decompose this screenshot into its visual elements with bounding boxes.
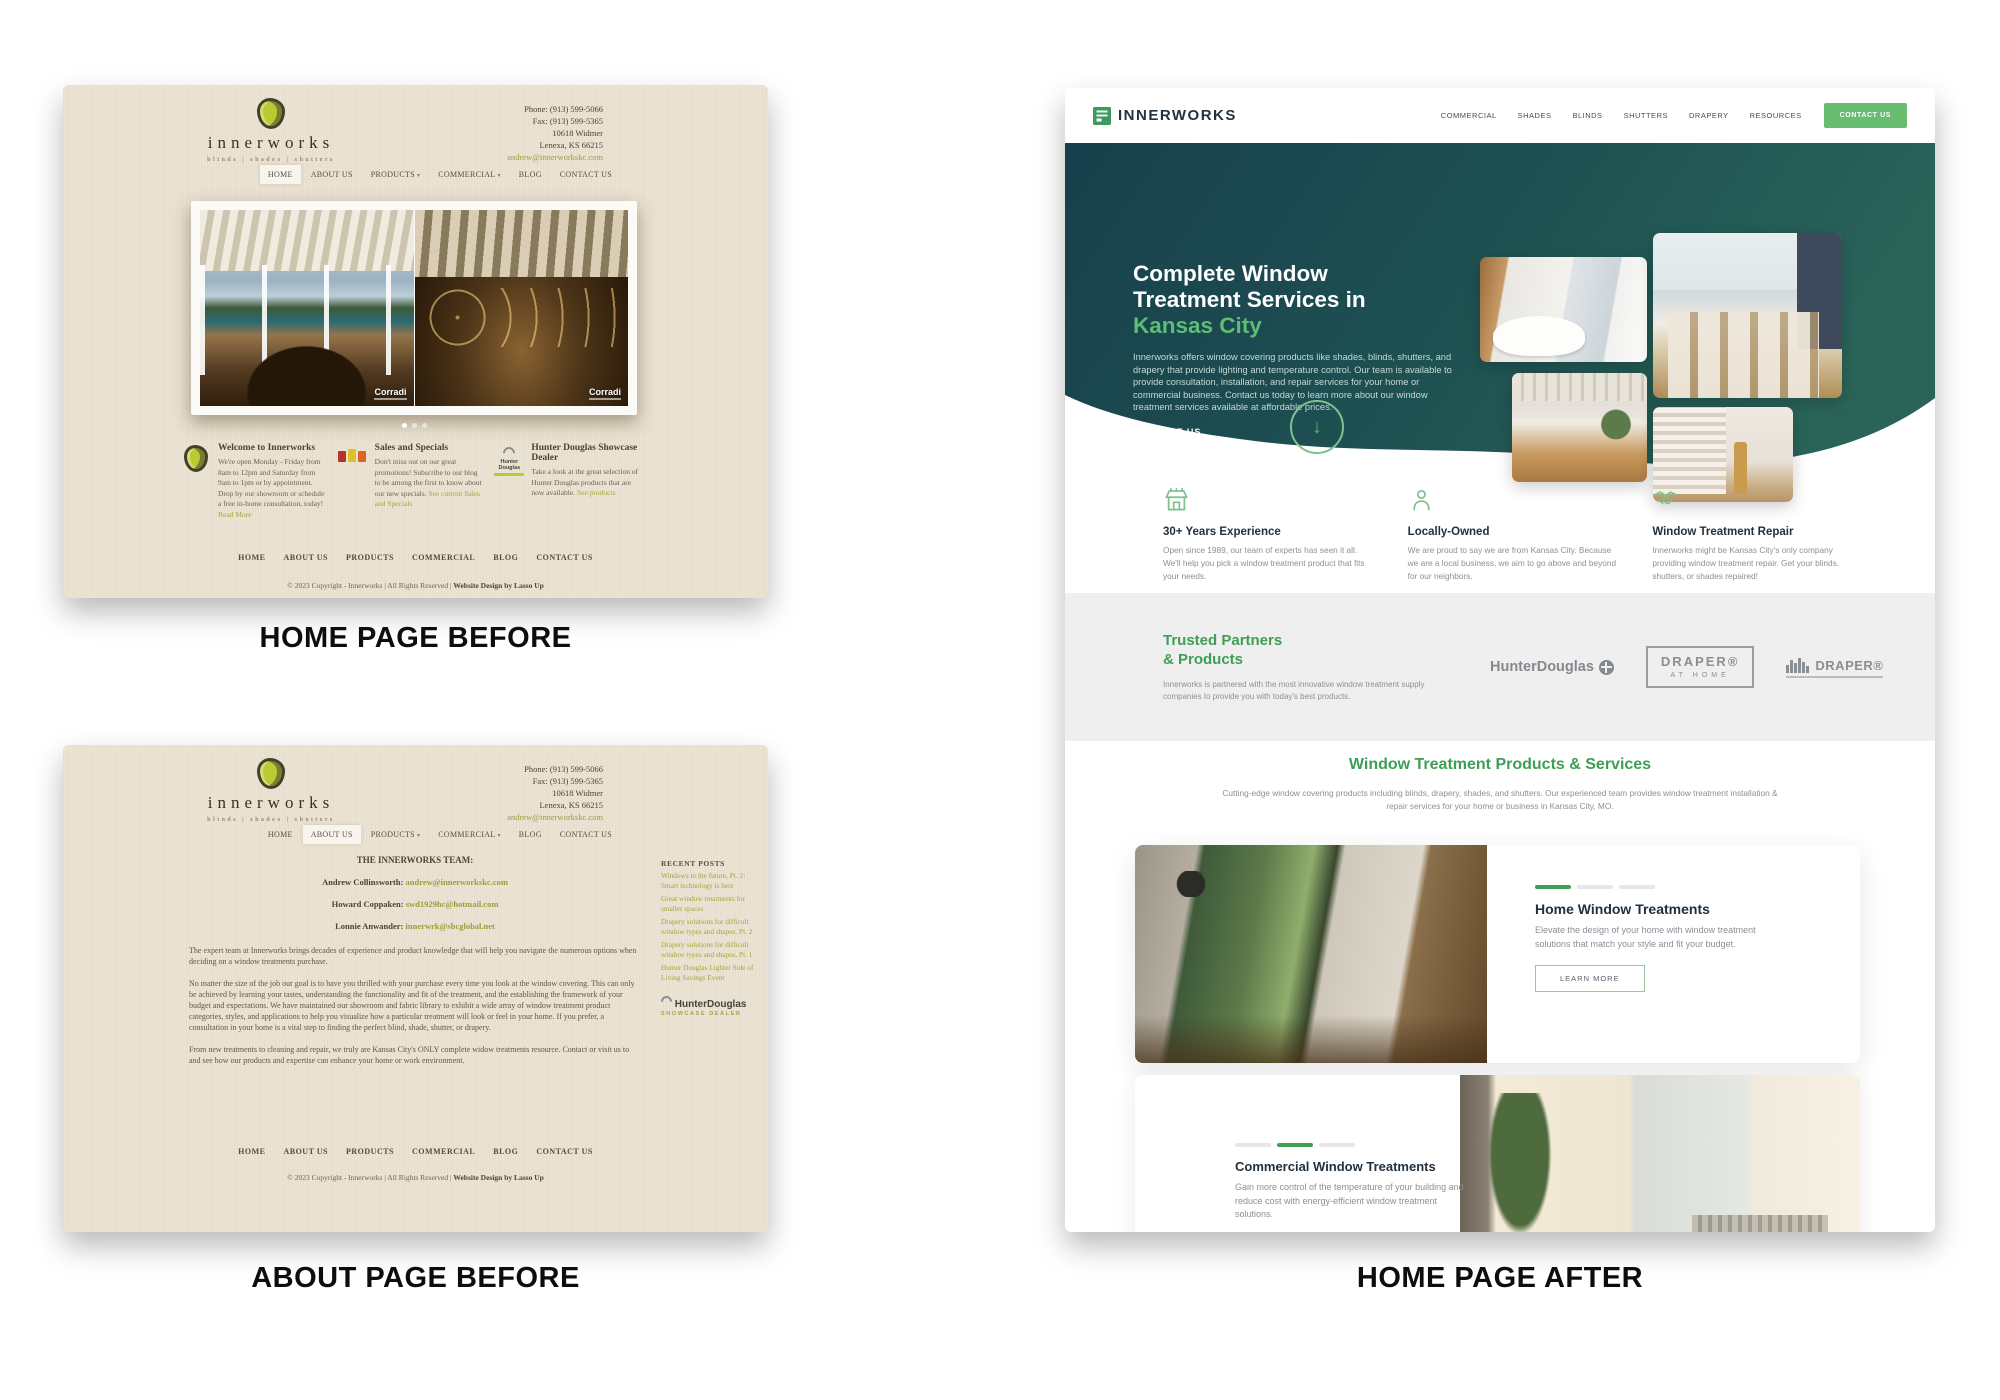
- nav-blog[interactable]: BLOG: [511, 165, 550, 184]
- sales-column: Sales and Specials Don't miss out on our…: [338, 443, 485, 520]
- footer-nav-blog[interactable]: BLOG: [493, 553, 518, 562]
- footer-nav-products[interactable]: PRODUCTS: [346, 553, 394, 562]
- storefront-icon: [1163, 486, 1190, 513]
- contact-us-button[interactable]: CONTACT US: [1824, 103, 1907, 128]
- progress-step[interactable]: [1277, 1143, 1313, 1147]
- hd-arc-icon: [659, 994, 675, 1010]
- handshake-icon: [1652, 486, 1679, 513]
- draper-at-home-logo: DRAPER® AT HOME: [1646, 646, 1754, 688]
- hd-title: Hunter Douglas Showcase Dealer: [531, 443, 641, 463]
- site-header: INNERWORKS COMMERCIAL SHADES BLINDS SHUT…: [1065, 88, 1935, 143]
- hero-title-accent: Kansas City: [1133, 313, 1468, 339]
- designer-credit-link[interactable]: Website Design by Lasso Up: [453, 581, 543, 590]
- hero-slider[interactable]: Corradi Corradi: [191, 201, 637, 415]
- nav-drapery[interactable]: DRAPERY: [1689, 111, 1729, 120]
- progress-step[interactable]: [1319, 1143, 1355, 1147]
- nav-about[interactable]: ABOUT US: [303, 165, 361, 184]
- email-link[interactable]: andrew@innerworkskc.com: [507, 811, 603, 823]
- hunter-douglas-column: Hunter Douglas Hunter Douglas Showcase D…: [494, 443, 641, 520]
- nav-about[interactable]: ABOUT US: [303, 825, 361, 844]
- feature-columns: 30+ Years Experience Open since 1989, ou…: [1163, 486, 1863, 583]
- phone: Phone: (913) 599-5066: [507, 103, 603, 115]
- footer-nav-contact[interactable]: CONTACT US: [536, 553, 593, 562]
- footer-nav: HOME ABOUT US PRODUCTS COMMERCIAL BLOG C…: [63, 1147, 768, 1156]
- slider-dot[interactable]: [412, 423, 417, 428]
- home-after-screenshot: INNERWORKS COMMERCIAL SHADES BLINDS SHUT…: [1065, 88, 1935, 1232]
- read-more-link[interactable]: Read More: [218, 510, 252, 519]
- logo-wordmark: innerworks: [191, 133, 351, 153]
- address-line1: 10618 Widmer: [507, 127, 603, 139]
- team-email-link[interactable]: swd1929hc@hotmail.com: [406, 899, 499, 909]
- home-before-screenshot: innerworks blinds | shades | shutters Ph…: [63, 85, 768, 598]
- trusted-partners-section: Trusted Partners & Products Innerworks i…: [1065, 593, 1935, 741]
- about-paragraph: The expert team at Innerworks brings dec…: [189, 945, 641, 967]
- progress-step[interactable]: [1577, 885, 1613, 889]
- sale-bags-icon: [338, 445, 368, 462]
- hd-cross-icon: [1599, 660, 1614, 675]
- address-line2: Lenexa, KS 66215: [507, 799, 603, 811]
- fax: Fax: (913) 599-5365: [507, 775, 603, 787]
- nav-contact[interactable]: CONTACT US: [552, 165, 620, 184]
- innerworks-logo: innerworks blinds | shades | shutters: [191, 98, 351, 163]
- design-showcase: innerworks blinds | shades | shutters Ph…: [0, 0, 2000, 1400]
- products-heading: Window Treatment Products & Services: [1065, 756, 1935, 774]
- footer-nav: HOME ABOUT US PRODUCTS COMMERCIAL BLOG C…: [63, 553, 768, 562]
- progress-step[interactable]: [1619, 885, 1655, 889]
- hunter-douglas-badge: HunterDouglas SHOWCASE DEALER: [661, 996, 761, 1017]
- innerworks-logo-icon: [257, 98, 285, 129]
- corradi-watermark: Corradi: [589, 387, 621, 400]
- footer-nav-blog[interactable]: BLOG: [493, 1147, 518, 1156]
- learn-more-button[interactable]: LEARN MORE: [1535, 965, 1645, 992]
- post-link[interactable]: Great window treatments for smaller spac…: [661, 894, 761, 914]
- hero-title: Complete Window Treatment Services in Ka…: [1133, 261, 1468, 339]
- welcome-column: Welcome to Innerworks We're open Monday …: [181, 443, 328, 520]
- footer-nav-products[interactable]: PRODUCTS: [346, 1147, 394, 1156]
- nav-shutters[interactable]: SHUTTERS: [1624, 111, 1668, 120]
- phone: Phone: (913) 599-5066: [507, 763, 603, 775]
- skyline-icon: [1786, 657, 1812, 673]
- footer-nav-commercial[interactable]: COMMERCIAL: [412, 553, 475, 562]
- progress-step[interactable]: [1235, 1143, 1271, 1147]
- corradi-watermark: Corradi: [374, 387, 406, 400]
- locally-owned-feature: Locally-Owned We are proud to say we are…: [1408, 486, 1619, 583]
- person-icon: [1408, 486, 1435, 513]
- post-link[interactable]: Windows to the future, Pt. 2: Smart tech…: [661, 871, 761, 891]
- logo-wordmark: innerworks: [191, 793, 351, 813]
- nav-commercial[interactable]: COMMERCIAL: [1441, 111, 1497, 120]
- team-heading: THE INNERWORKS TEAM:: [189, 855, 641, 865]
- copyright: © 2023 Copyright - Innerworks | All Righ…: [63, 1173, 768, 1182]
- footer-nav-contact[interactable]: CONTACT US: [536, 1147, 593, 1156]
- logo-tagline: blinds | shades | shutters: [191, 156, 351, 163]
- canopy-texture: [415, 210, 629, 277]
- team-member: Howard Coppaken: swd1929hc@hotmail.com: [189, 899, 641, 909]
- logo-tagline: blinds | shades | shutters: [191, 816, 351, 823]
- recent-posts-sidebar: RECENT POSTS Windows to the future, Pt. …: [661, 859, 761, 1017]
- caption-home-after: HOME PAGE AFTER: [1065, 1262, 1935, 1295]
- nav-home[interactable]: HOME: [260, 825, 301, 844]
- post-link[interactable]: Hunter Douglas Lighter Side of Living Sa…: [661, 963, 761, 983]
- see-products-link[interactable]: See products: [577, 488, 616, 497]
- innerworks-logo: INNERWORKS: [1093, 107, 1237, 125]
- nav-shades[interactable]: SHADES: [1518, 111, 1552, 120]
- logo-wordmark: INNERWORKS: [1118, 107, 1237, 124]
- progress-step[interactable]: [1535, 885, 1571, 889]
- caption-home-before: HOME PAGE BEFORE: [63, 622, 768, 655]
- address-line2: Lenexa, KS 66215: [507, 139, 603, 151]
- about-before-screenshot: innerworks blinds | shades | shutters Ph…: [63, 745, 768, 1232]
- card-text: Gain more control of the temperature of …: [1235, 1181, 1470, 1222]
- draper-tagline-rule: [1786, 676, 1883, 678]
- carousel-progress: [1535, 885, 1793, 889]
- footer-nav-home[interactable]: HOME: [238, 1147, 265, 1156]
- team-email-link[interactable]: andrew@innerworkskc.com: [406, 877, 508, 887]
- down-arrow-icon: ↓: [1312, 416, 1322, 439]
- nav-resources[interactable]: RESOURCES: [1750, 111, 1802, 120]
- nav-blog[interactable]: BLOG: [511, 825, 550, 844]
- post-link[interactable]: Drapery solutions for difficult window t…: [661, 940, 761, 960]
- footer-nav-about[interactable]: ABOUT US: [283, 1147, 328, 1156]
- nav-commercial[interactable]: COMMERCIAL: [430, 165, 509, 184]
- post-link[interactable]: Drapery solutions for difficult window t…: [661, 917, 761, 937]
- commercial-treatments-card: Commercial Window Treatments Gain more c…: [1135, 1075, 1860, 1232]
- nav-products[interactable]: PRODUCTS: [363, 165, 429, 184]
- contact-info: Phone: (913) 599-5066 Fax: (913) 599-536…: [507, 103, 603, 163]
- about-content: THE INNERWORKS TEAM: Andrew Collinsworth…: [189, 855, 641, 1066]
- dining-room-photo: [1653, 233, 1842, 398]
- canopy-texture: [200, 210, 414, 271]
- address-line1: 10618 Widmer: [507, 787, 603, 799]
- card-title: Home Window Treatments: [1535, 901, 1793, 917]
- copyright: © 2023 Copyright - Innerworks | All Righ…: [63, 581, 768, 590]
- hunter-douglas-logo: HunterDouglas: [1490, 659, 1614, 675]
- contact-info: Phone: (913) 599-5066 Fax: (913) 599-536…: [507, 763, 603, 823]
- about-paragraph: From new treatments to cleaning and repa…: [189, 1044, 641, 1066]
- slider-dots: [191, 423, 637, 428]
- partners-text: Innerworks is partnered with the most in…: [1163, 679, 1438, 703]
- email-link[interactable]: andrew@innerworkskc.com: [507, 151, 603, 163]
- carousel-progress: [1235, 1143, 1485, 1147]
- innerworks-logo-icon: [257, 758, 285, 789]
- slider-dot[interactable]: [402, 423, 407, 428]
- sales-title: Sales and Specials: [375, 443, 485, 453]
- bathroom-shades-photo: [1480, 257, 1647, 362]
- card-title: Commercial Window Treatments: [1235, 1159, 1485, 1174]
- repair-feature: Window Treatment Repair Innerworks might…: [1652, 486, 1863, 583]
- footer-nav-commercial[interactable]: COMMERCIAL: [412, 1147, 475, 1156]
- innerworks-logo-icon: [184, 445, 208, 472]
- about-paragraph: No matter the size of the job our goal i…: [189, 978, 641, 1033]
- lights-texture: [415, 288, 629, 347]
- footer-nav-about[interactable]: ABOUT US: [283, 553, 328, 562]
- designer-credit-link[interactable]: Website Design by Lasso Up: [453, 1173, 543, 1182]
- blinds-logo-icon: [1093, 107, 1111, 125]
- partners-heading: Trusted Partners & Products: [1163, 631, 1438, 669]
- main-nav: HOME ABOUT US PRODUCTS COMMERCIAL BLOG C…: [260, 165, 620, 184]
- nav-commercial[interactable]: COMMERCIAL: [430, 825, 509, 844]
- footer-nav-home[interactable]: HOME: [238, 553, 265, 562]
- nav-products[interactable]: PRODUCTS: [363, 825, 429, 844]
- furniture-silhouette: [238, 339, 375, 406]
- nav-blinds[interactable]: BLINDS: [1572, 111, 1602, 120]
- products-subtitle: Cutting-edge window covering products in…: [1220, 787, 1780, 813]
- recent-posts-heading: RECENT POSTS: [661, 859, 761, 868]
- welcome-title: Welcome to Innerworks: [218, 443, 328, 453]
- team-member: Lonnie Anwander: innerwrk@sbcglobal.net: [189, 921, 641, 931]
- fax: Fax: (913) 599-5365: [507, 115, 603, 127]
- nav-contact[interactable]: CONTACT US: [552, 825, 620, 844]
- patio-photo: Corradi: [200, 210, 414, 406]
- home-interior-photo: [1135, 845, 1487, 1063]
- main-nav: COMMERCIAL SHADES BLINDS SHUTTERS DRAPER…: [1441, 111, 1802, 120]
- team-email-link[interactable]: innerwrk@sbcglobal.net: [406, 921, 495, 931]
- innerworks-logo: innerworks blinds | shades | shutters: [191, 758, 351, 823]
- main-nav: HOME ABOUT US PRODUCTS COMMERCIAL BLOG C…: [260, 825, 620, 844]
- desk-window-photo: [1512, 373, 1647, 482]
- draper-logo: DRAPER®: [1786, 657, 1883, 678]
- slider-dot[interactable]: [422, 423, 427, 428]
- home-feature-columns: Welcome to Innerworks We're open Monday …: [181, 443, 641, 520]
- nav-home[interactable]: HOME: [260, 165, 301, 184]
- bar-photo: Corradi: [415, 210, 629, 406]
- hunter-douglas-badge-icon: Hunter Douglas: [494, 445, 524, 476]
- experience-feature: 30+ Years Experience Open since 1989, ou…: [1163, 486, 1374, 583]
- welcome-text: We're open Monday - Friday from 8am to 1…: [218, 457, 324, 508]
- team-member: Andrew Collinsworth: andrew@innerworkskc…: [189, 877, 641, 887]
- commercial-office-photo: [1460, 1075, 1860, 1232]
- scroll-down-button[interactable]: ↓: [1290, 400, 1344, 454]
- home-treatments-card: Home Window Treatments Elevate the desig…: [1135, 845, 1860, 1063]
- card-text: Elevate the design of your home with win…: [1535, 924, 1793, 951]
- caption-about-before: ABOUT PAGE BEFORE: [63, 1262, 768, 1295]
